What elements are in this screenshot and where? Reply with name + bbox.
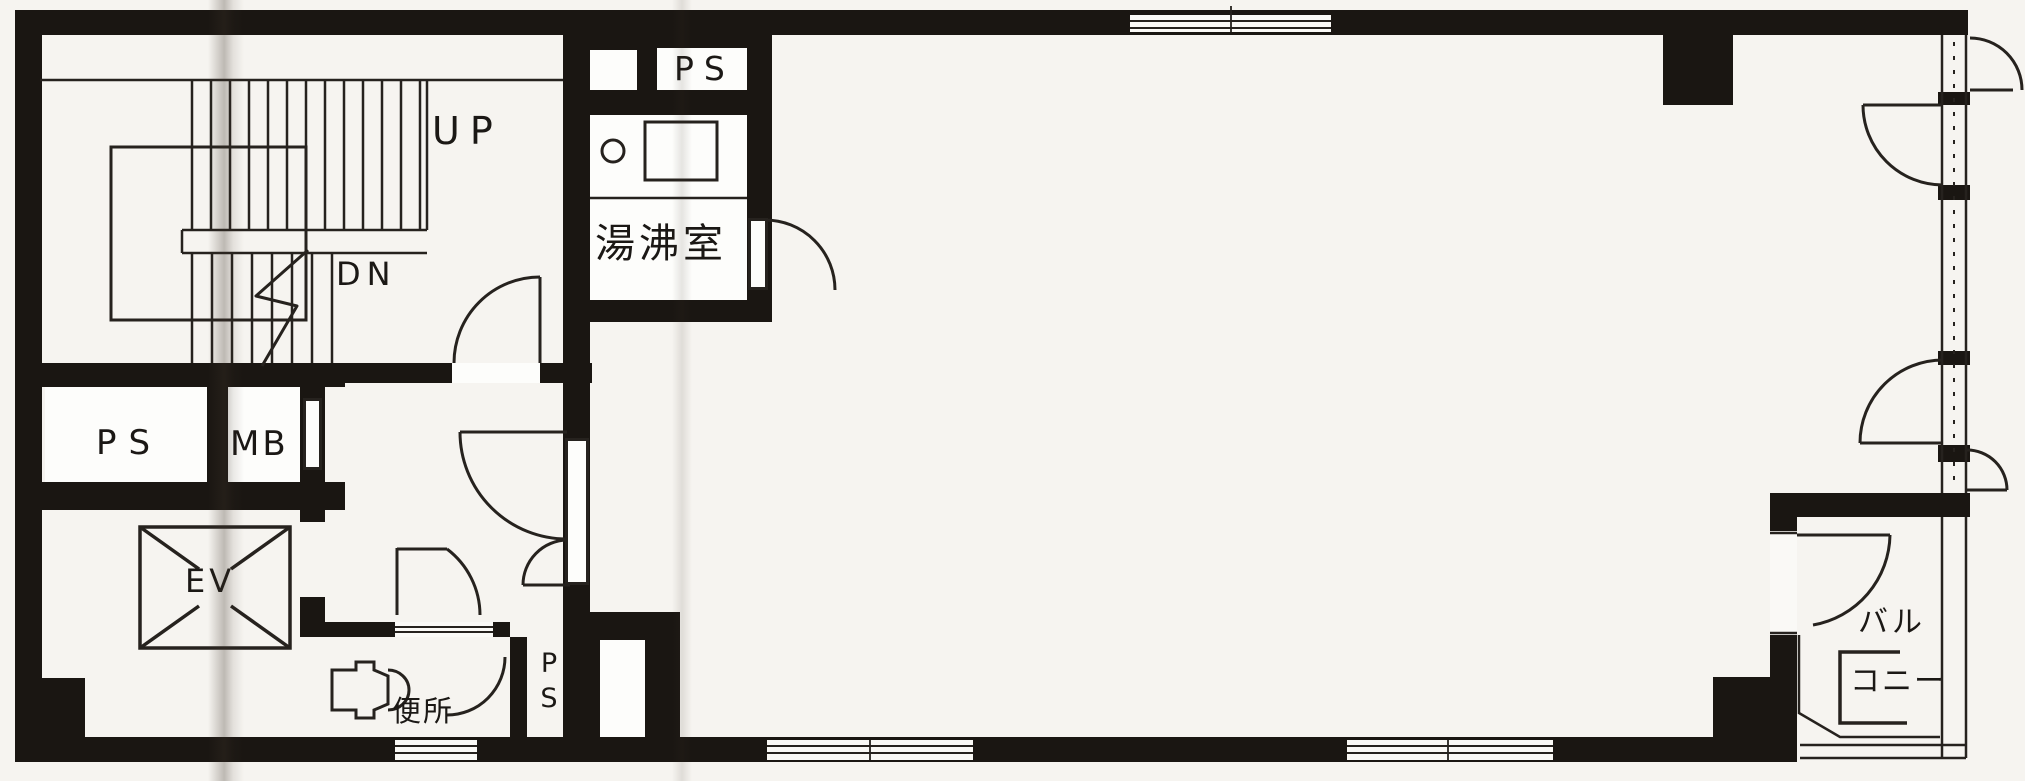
exterior-door-mid-icon [1967, 450, 2007, 490]
label-elevator: EV [185, 565, 235, 597]
stairwell-door-icon [454, 277, 540, 363]
counter-icon [590, 122, 747, 198]
label-pipe-space-bottom-s: S [540, 683, 557, 714]
label-stairs-up: UP [432, 112, 503, 150]
plan-linework [0, 0, 2025, 781]
sink-icon [602, 140, 624, 162]
floor-plan-canvas: UP DN PS 湯沸室 PS MB EV 便所 P S バル コニー [0, 0, 2025, 781]
label-toilet: 便所 [392, 697, 454, 726]
label-stairs-dn: DN [336, 258, 397, 290]
right-wall-door-upper-icon [1863, 105, 1943, 185]
toilet-door-icon [447, 657, 505, 715]
exterior-door-top-icon [1970, 38, 2022, 90]
glass-wall-right [1800, 35, 1966, 758]
label-pipe-space-top: PS [674, 52, 735, 85]
label-pipe-space-bottom-p: P [541, 648, 557, 679]
label-pipe-space-bottom: P S [531, 646, 567, 716]
label-kitchenette: 湯沸室 [595, 224, 727, 264]
window-glazing [395, 6, 1553, 760]
label-balcony-line2: コニー [1850, 667, 1946, 697]
label-meter-box: MB [230, 427, 289, 461]
right-wall-door-lower-icon [1860, 360, 1943, 443]
label-balcony-line1: バル [1858, 608, 1926, 638]
main-entrance-door-icon [460, 432, 570, 585]
vestibule-door-icon [397, 548, 480, 615]
label-pipe-space-left: PS [96, 426, 162, 460]
kitchenette-door-icon [765, 220, 835, 290]
